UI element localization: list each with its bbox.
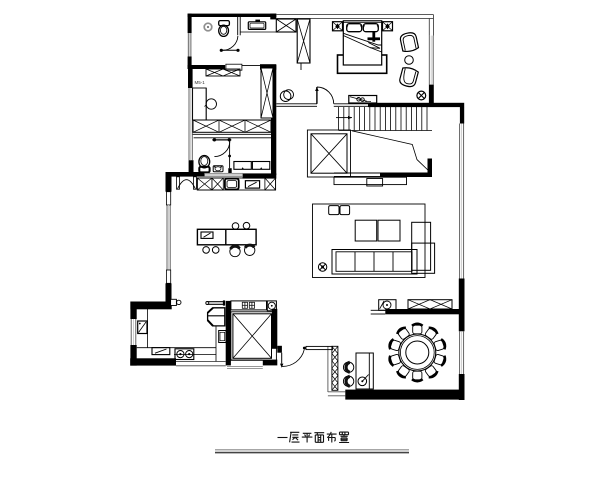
svg-text:M5-1: M5-1 (195, 80, 206, 85)
